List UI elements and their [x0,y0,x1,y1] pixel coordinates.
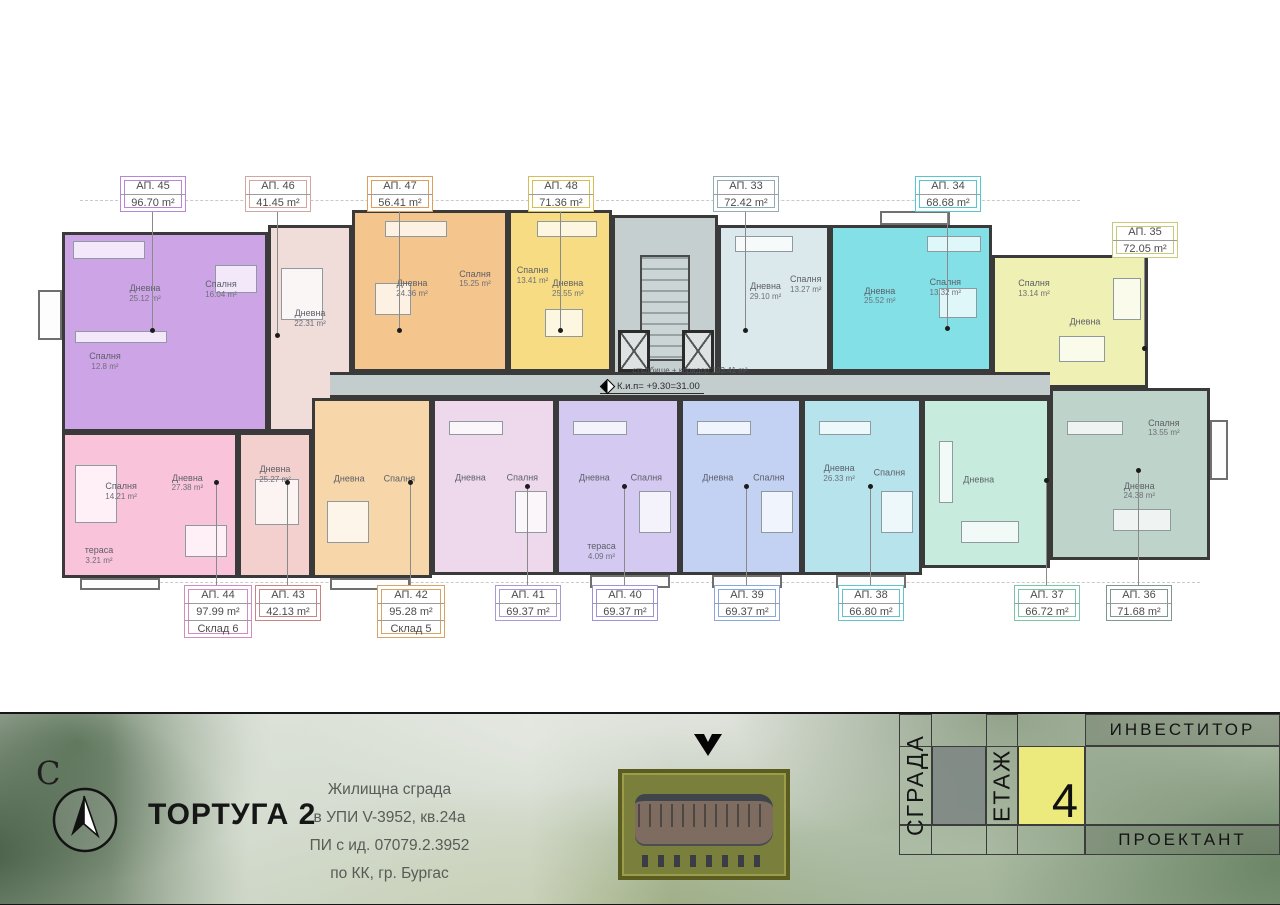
floor-label-cell: ЕТАЖ [986,746,1018,825]
designer-label: ПРОЕКТАНТ [1118,830,1246,850]
apartment-33-region: Дневна29.10 m² Спалня13.27 m² [718,225,830,372]
apartment-44-region: Дневна27.38 m² Спалня14.21 m² тераса3.21… [62,432,238,578]
apartment-47-region: Дневна24.36 m² Спалня15.25 m² [352,210,508,372]
investor-label: ИНВЕСТИТОР [1110,720,1256,740]
floor-plan-sheet: Дневна25.12 m² Спалня16.04 m² Спалня12.8… [0,0,1280,905]
building-value-cell [932,746,986,825]
corridor-label: стълбище + коридор 103.41 m² [620,366,760,376]
apartment-43-region: Дневна25.27 m² [238,432,312,578]
elevation-marker-icon [600,379,616,395]
description-line: в УПИ V-3952, кв.24а [292,804,487,832]
apartment-46-label: АП. 4641.45 m² [245,176,311,212]
apartment-42-label: АП. 4295.28 m²Склад 5 [377,585,445,638]
terrace [880,211,950,225]
apartment-41-label: АП. 4169.37 m² [495,585,561,621]
site-roof-detail [638,804,769,827]
apartment-38-region: Дневна26.33 m² Спалня [802,398,922,575]
site-plan-thumbnail [618,769,790,880]
footer-band: С ТОРТУГА 2 Жилищна сграда в УПИ V-3952,… [0,712,1280,905]
apartment-45-region: Дневна25.12 m² Спалня16.04 m² Спалня12.8… [62,232,268,432]
elevation-mark: К.и.п= +9.30=31.00 [600,381,704,394]
apartment-36-region: Дневна24.38 m² Спалня13.55 m² [1050,388,1210,560]
terrace [1210,420,1228,480]
apartment-38-label: АП. 3866.80 m² [838,585,904,621]
apartment-37-region: Дневна [922,398,1050,568]
apartment-41-region: Дневна Спалня [432,398,556,575]
apartment-39-label: АП. 3969.37 m² [714,585,780,621]
description-line: Жилищна сграда [292,776,487,804]
apartment-34-region: Дневна25.52 m² Спалня13.32 m² [830,225,992,372]
apartment-47-label: АП. 4756.41 m² [367,176,433,212]
apartment-43-label: АП. 4342.13 m² [255,585,321,621]
apartment-48-label: АП. 4871.36 m² [528,176,594,212]
apartment-35-region: Дневна Спалня13.14 m² [992,255,1148,388]
apartment-40-region: Дневна Спалня тераса4.09 m² [556,398,680,575]
apartment-42-region: Дневна Спалня [312,398,432,578]
description-line: ПИ с ид. 07079.2.3952 [292,832,487,860]
building-label-cell: СГРАДА [899,746,932,825]
apartment-44-label: АП. 4497.99 m²Склад 6 [184,585,252,638]
apartment-34-label: АП. 3468.68 m² [915,176,981,212]
investor-header: ИНВЕСТИТОР [1085,714,1280,746]
terrace [80,578,160,590]
description-line: по КК, гр. Бургас [292,860,487,888]
compass-icon [50,784,120,856]
apartment-33-label: АП. 3372.42 m² [713,176,779,212]
terrace [38,290,62,340]
building-label: СГРАДА [900,747,931,824]
location-arrow-icon [694,734,722,756]
apartment-45-label: АП. 4596.70 m² [120,176,186,212]
apartment-37-label: АП. 3766.72 m² [1014,585,1080,621]
floor-value-cell: 4 [1018,746,1085,825]
project-description: Жилищна сграда в УПИ V-3952, кв.24а ПИ с… [292,776,487,888]
apartment-39-region: Дневна Спалня [680,398,802,575]
site-parking-row [642,855,767,866]
apartment-35-label: АП. 3572.05 m² [1112,222,1178,258]
floor-number: 4 [1052,777,1078,824]
designer-header: ПРОЕКТАНТ [1085,825,1280,855]
floor-label: ЕТАЖ [987,747,1017,824]
titleblock-cell [899,825,1085,855]
apartment-40-label: АП. 4069.37 m² [592,585,658,621]
apartment-36-label: АП. 3671.68 m² [1106,585,1172,621]
investor-logo-cell [1085,746,1280,825]
